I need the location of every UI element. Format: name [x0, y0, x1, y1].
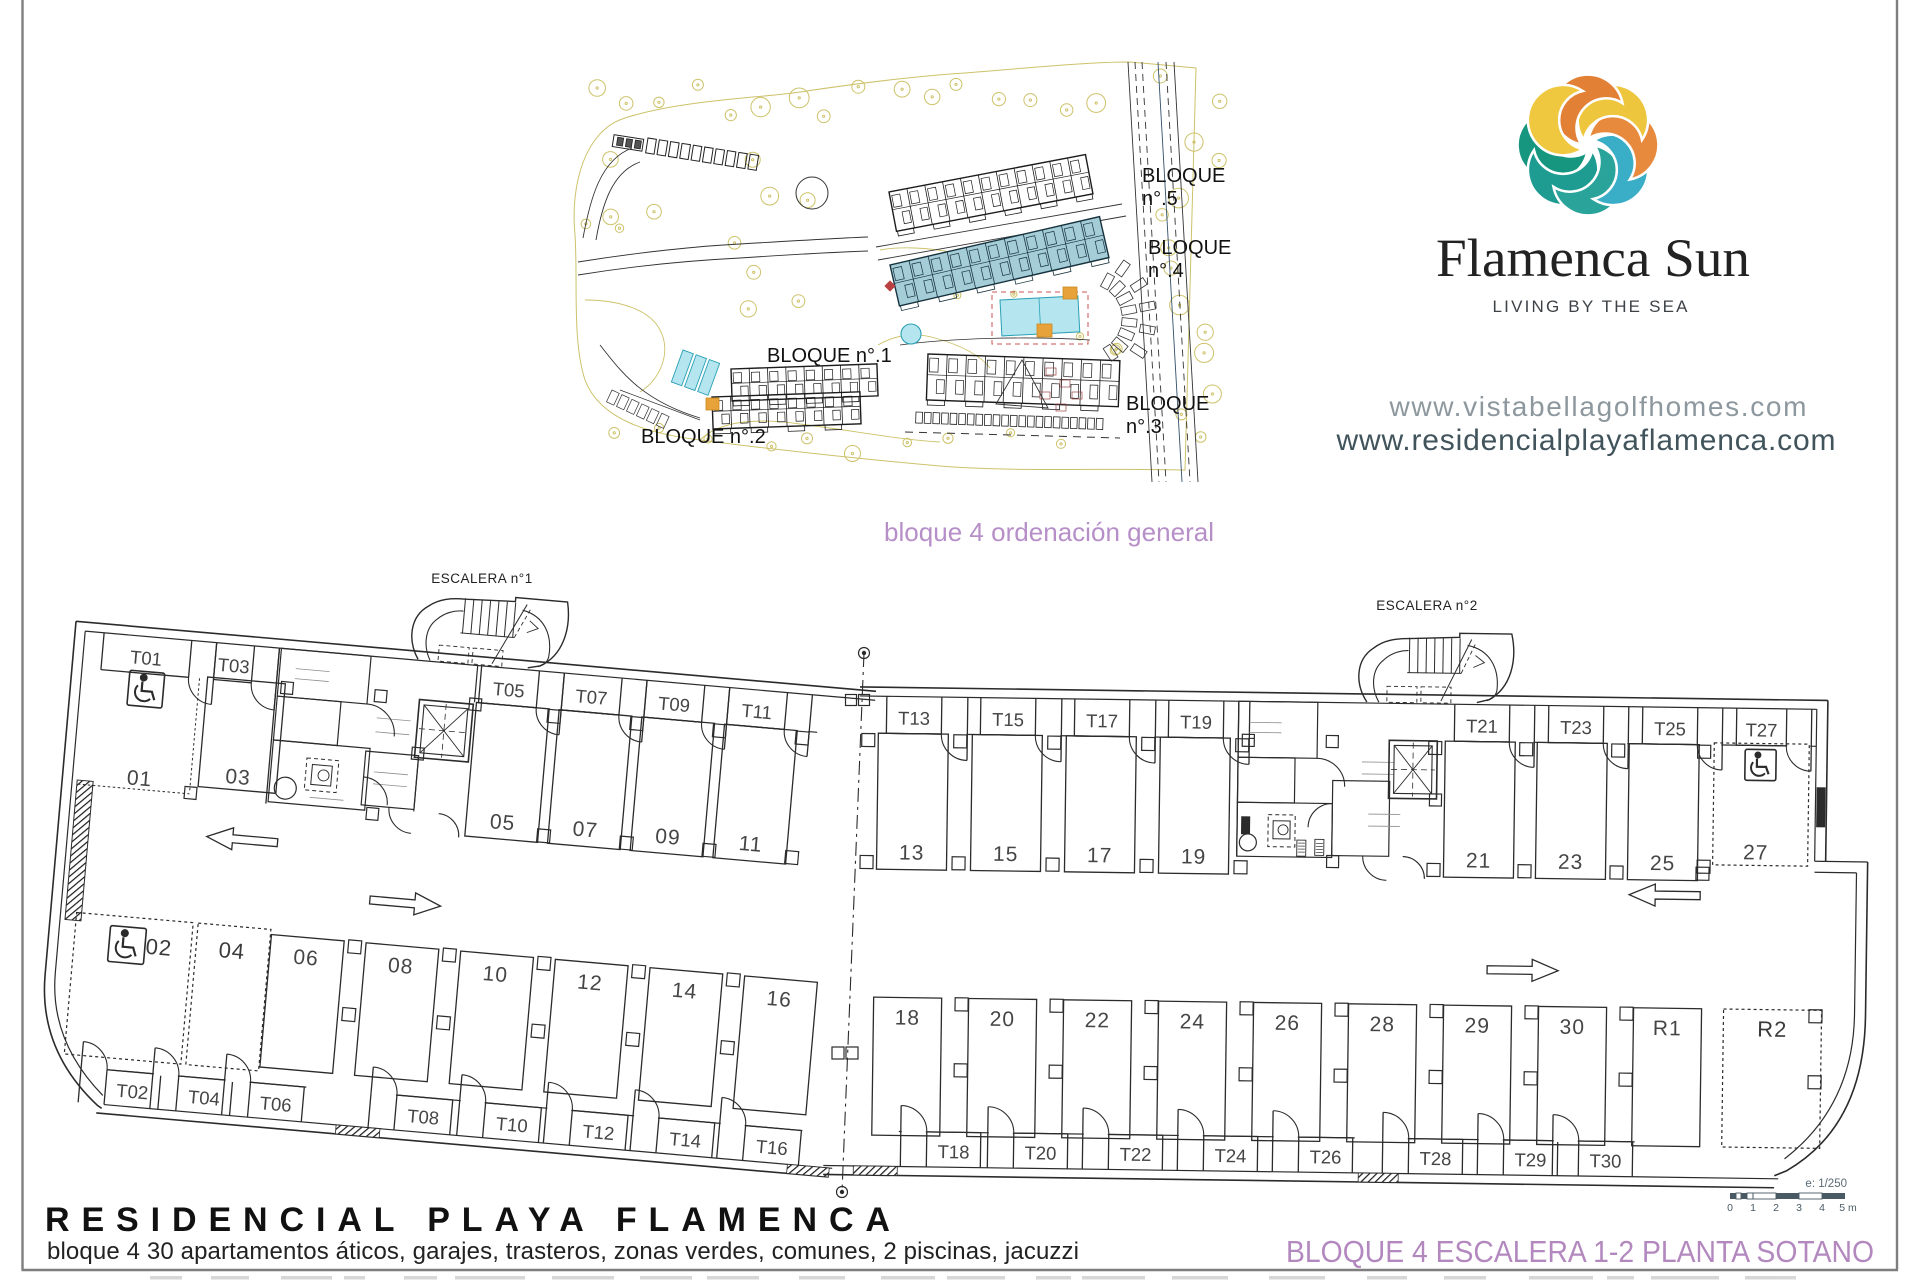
svg-text:5 m: 5 m — [1839, 1202, 1857, 1214]
svg-text:T23: T23 — [1560, 717, 1592, 738]
svg-text:T17: T17 — [1086, 710, 1118, 731]
svg-text:T02: T02 — [115, 1080, 149, 1104]
svg-text:3: 3 — [1796, 1202, 1802, 1214]
svg-text:11: 11 — [738, 832, 764, 857]
svg-text:ESCALERA n°1: ESCALERA n°1 — [431, 571, 532, 586]
svg-text:10: 10 — [482, 962, 509, 987]
svg-text:T03: T03 — [217, 654, 251, 678]
svg-text:BLOQUE 4 ESCALERA 1-2 PLANTA S: BLOQUE 4 ESCALERA 1-2 PLANTA SOTANO — [1286, 1234, 1874, 1269]
svg-text:27: 27 — [1743, 841, 1769, 864]
svg-text:29: 29 — [1464, 1014, 1490, 1037]
svg-text:24: 24 — [1180, 1010, 1206, 1033]
svg-text:T04: T04 — [187, 1086, 221, 1110]
svg-text:0: 0 — [1727, 1202, 1733, 1214]
svg-text:2: 2 — [1773, 1202, 1779, 1214]
svg-text:BLOQUE n°.1: BLOQUE n°.1 — [767, 345, 892, 367]
svg-text:bloque 4 ordenación general: bloque 4 ordenación general — [884, 517, 1214, 547]
svg-text:BLOQUE: BLOQUE — [1126, 393, 1209, 415]
svg-text:07: 07 — [572, 817, 599, 842]
svg-text:T26: T26 — [1309, 1146, 1341, 1167]
svg-text:14: 14 — [671, 979, 698, 1004]
svg-text:BLOQUE: BLOQUE — [1142, 165, 1225, 187]
svg-text:bloque 4 30 apartamentos ático: bloque 4 30 apartamentos áticos, garajes… — [47, 1238, 1079, 1265]
svg-text:16: 16 — [766, 987, 793, 1012]
svg-text:T14: T14 — [668, 1128, 702, 1152]
svg-text:T27: T27 — [1745, 719, 1777, 740]
svg-text:T24: T24 — [1214, 1145, 1246, 1166]
svg-text:05: 05 — [489, 810, 516, 835]
svg-text:09: 09 — [654, 825, 681, 850]
svg-text:06: 06 — [292, 946, 319, 971]
svg-text:T12: T12 — [582, 1120, 616, 1144]
svg-text:22: 22 — [1085, 1009, 1111, 1032]
svg-text:www.residencialplayaflamenca.c: www.residencialplayaflamenca.com — [1336, 424, 1836, 457]
svg-text:19: 19 — [1181, 845, 1207, 868]
svg-text:n°.4: n°.4 — [1148, 260, 1184, 282]
svg-text:T08: T08 — [406, 1105, 440, 1129]
svg-text:R1: R1 — [1653, 1017, 1682, 1040]
svg-text:21: 21 — [1466, 849, 1492, 872]
svg-text:15: 15 — [993, 843, 1019, 866]
svg-text:4: 4 — [1819, 1202, 1825, 1214]
svg-text:T19: T19 — [1180, 711, 1212, 732]
svg-text:T07: T07 — [575, 685, 609, 709]
svg-text:T30: T30 — [1589, 1150, 1621, 1171]
svg-text:n°.3: n°.3 — [1126, 416, 1162, 438]
svg-text:RESIDENCIAL PLAYA FLAMENCA: RESIDENCIAL PLAYA FLAMENCA — [45, 1201, 890, 1239]
svg-text:T28: T28 — [1419, 1148, 1451, 1169]
svg-text:www.vistabellagolfhomes.com: www.vistabellagolfhomes.com — [1389, 391, 1807, 422]
svg-text:30: 30 — [1559, 1016, 1585, 1039]
svg-text:12: 12 — [576, 970, 603, 995]
svg-text:T01: T01 — [129, 646, 163, 670]
svg-text:04: 04 — [218, 937, 247, 964]
svg-text:T22: T22 — [1119, 1144, 1151, 1165]
svg-text:T06: T06 — [259, 1092, 293, 1116]
svg-text:25: 25 — [1650, 852, 1676, 875]
svg-text:T10: T10 — [495, 1113, 529, 1137]
svg-text:T16: T16 — [755, 1136, 789, 1160]
svg-text:T20: T20 — [1024, 1142, 1056, 1163]
svg-text:08: 08 — [387, 954, 414, 979]
svg-text:23: 23 — [1558, 851, 1584, 874]
svg-text:ESCALERA n°2: ESCALERA n°2 — [1376, 598, 1477, 613]
svg-text:1: 1 — [1750, 1202, 1756, 1214]
svg-text:26: 26 — [1275, 1012, 1301, 1035]
svg-text:13: 13 — [899, 841, 925, 864]
svg-text:17: 17 — [1087, 844, 1113, 867]
svg-text:Flamenca Sun: Flamenca Sun — [1436, 228, 1750, 288]
svg-text:02: 02 — [145, 934, 174, 961]
svg-text:T25: T25 — [1654, 718, 1686, 739]
svg-text:BLOQUE: BLOQUE — [1148, 237, 1231, 259]
svg-text:R2: R2 — [1757, 1016, 1787, 1041]
svg-text:T15: T15 — [992, 709, 1024, 730]
svg-text:n°.5: n°.5 — [1142, 188, 1178, 210]
svg-text:28: 28 — [1369, 1013, 1395, 1036]
svg-text:20: 20 — [990, 1008, 1016, 1031]
svg-text:T21: T21 — [1466, 715, 1498, 736]
svg-text:18: 18 — [895, 1006, 921, 1029]
svg-text:T11: T11 — [741, 700, 773, 724]
svg-text:T18: T18 — [937, 1141, 969, 1162]
svg-text:LIVING BY THE SEA: LIVING BY THE SEA — [1493, 297, 1689, 316]
svg-text:BLOQUE n°.2: BLOQUE n°.2 — [641, 426, 766, 448]
svg-text:e: 1/250: e: 1/250 — [1805, 1178, 1847, 1190]
svg-text:01: 01 — [126, 766, 153, 791]
svg-text:T09: T09 — [657, 692, 691, 716]
svg-text:T05: T05 — [492, 678, 526, 702]
svg-text:T29: T29 — [1514, 1149, 1546, 1170]
svg-text:T13: T13 — [898, 707, 930, 728]
svg-text:03: 03 — [224, 765, 251, 790]
